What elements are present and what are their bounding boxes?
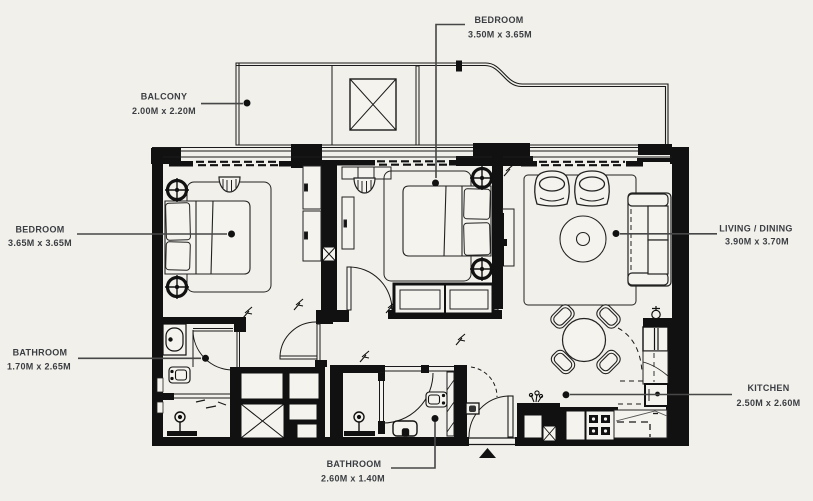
svg-text:3.90M x 3.70M: 3.90M x 3.70M [725,237,789,247]
svg-text:BEDROOM: BEDROOM [15,225,64,235]
svg-text:BATHROOM: BATHROOM [13,348,68,358]
svg-text:BATHROOM: BATHROOM [327,459,382,469]
svg-text:1.70M x 2.65M: 1.70M x 2.65M [7,362,71,372]
svg-text:2.50M x 2.60M: 2.50M x 2.60M [737,398,801,408]
svg-text:LIVING / DINING: LIVING / DINING [719,224,793,234]
svg-text:3.65M x 3.65M: 3.65M x 3.65M [8,238,72,248]
svg-text:BALCONY: BALCONY [141,92,188,102]
svg-text:KITCHEN: KITCHEN [747,383,789,393]
svg-text:2.00M x 2.20M: 2.00M x 2.20M [132,106,196,116]
svg-text:BEDROOM: BEDROOM [474,15,523,25]
svg-text:3.50M x 3.65M: 3.50M x 3.65M [468,30,532,40]
svg-text:2.60M x 1.40M: 2.60M x 1.40M [321,474,385,484]
